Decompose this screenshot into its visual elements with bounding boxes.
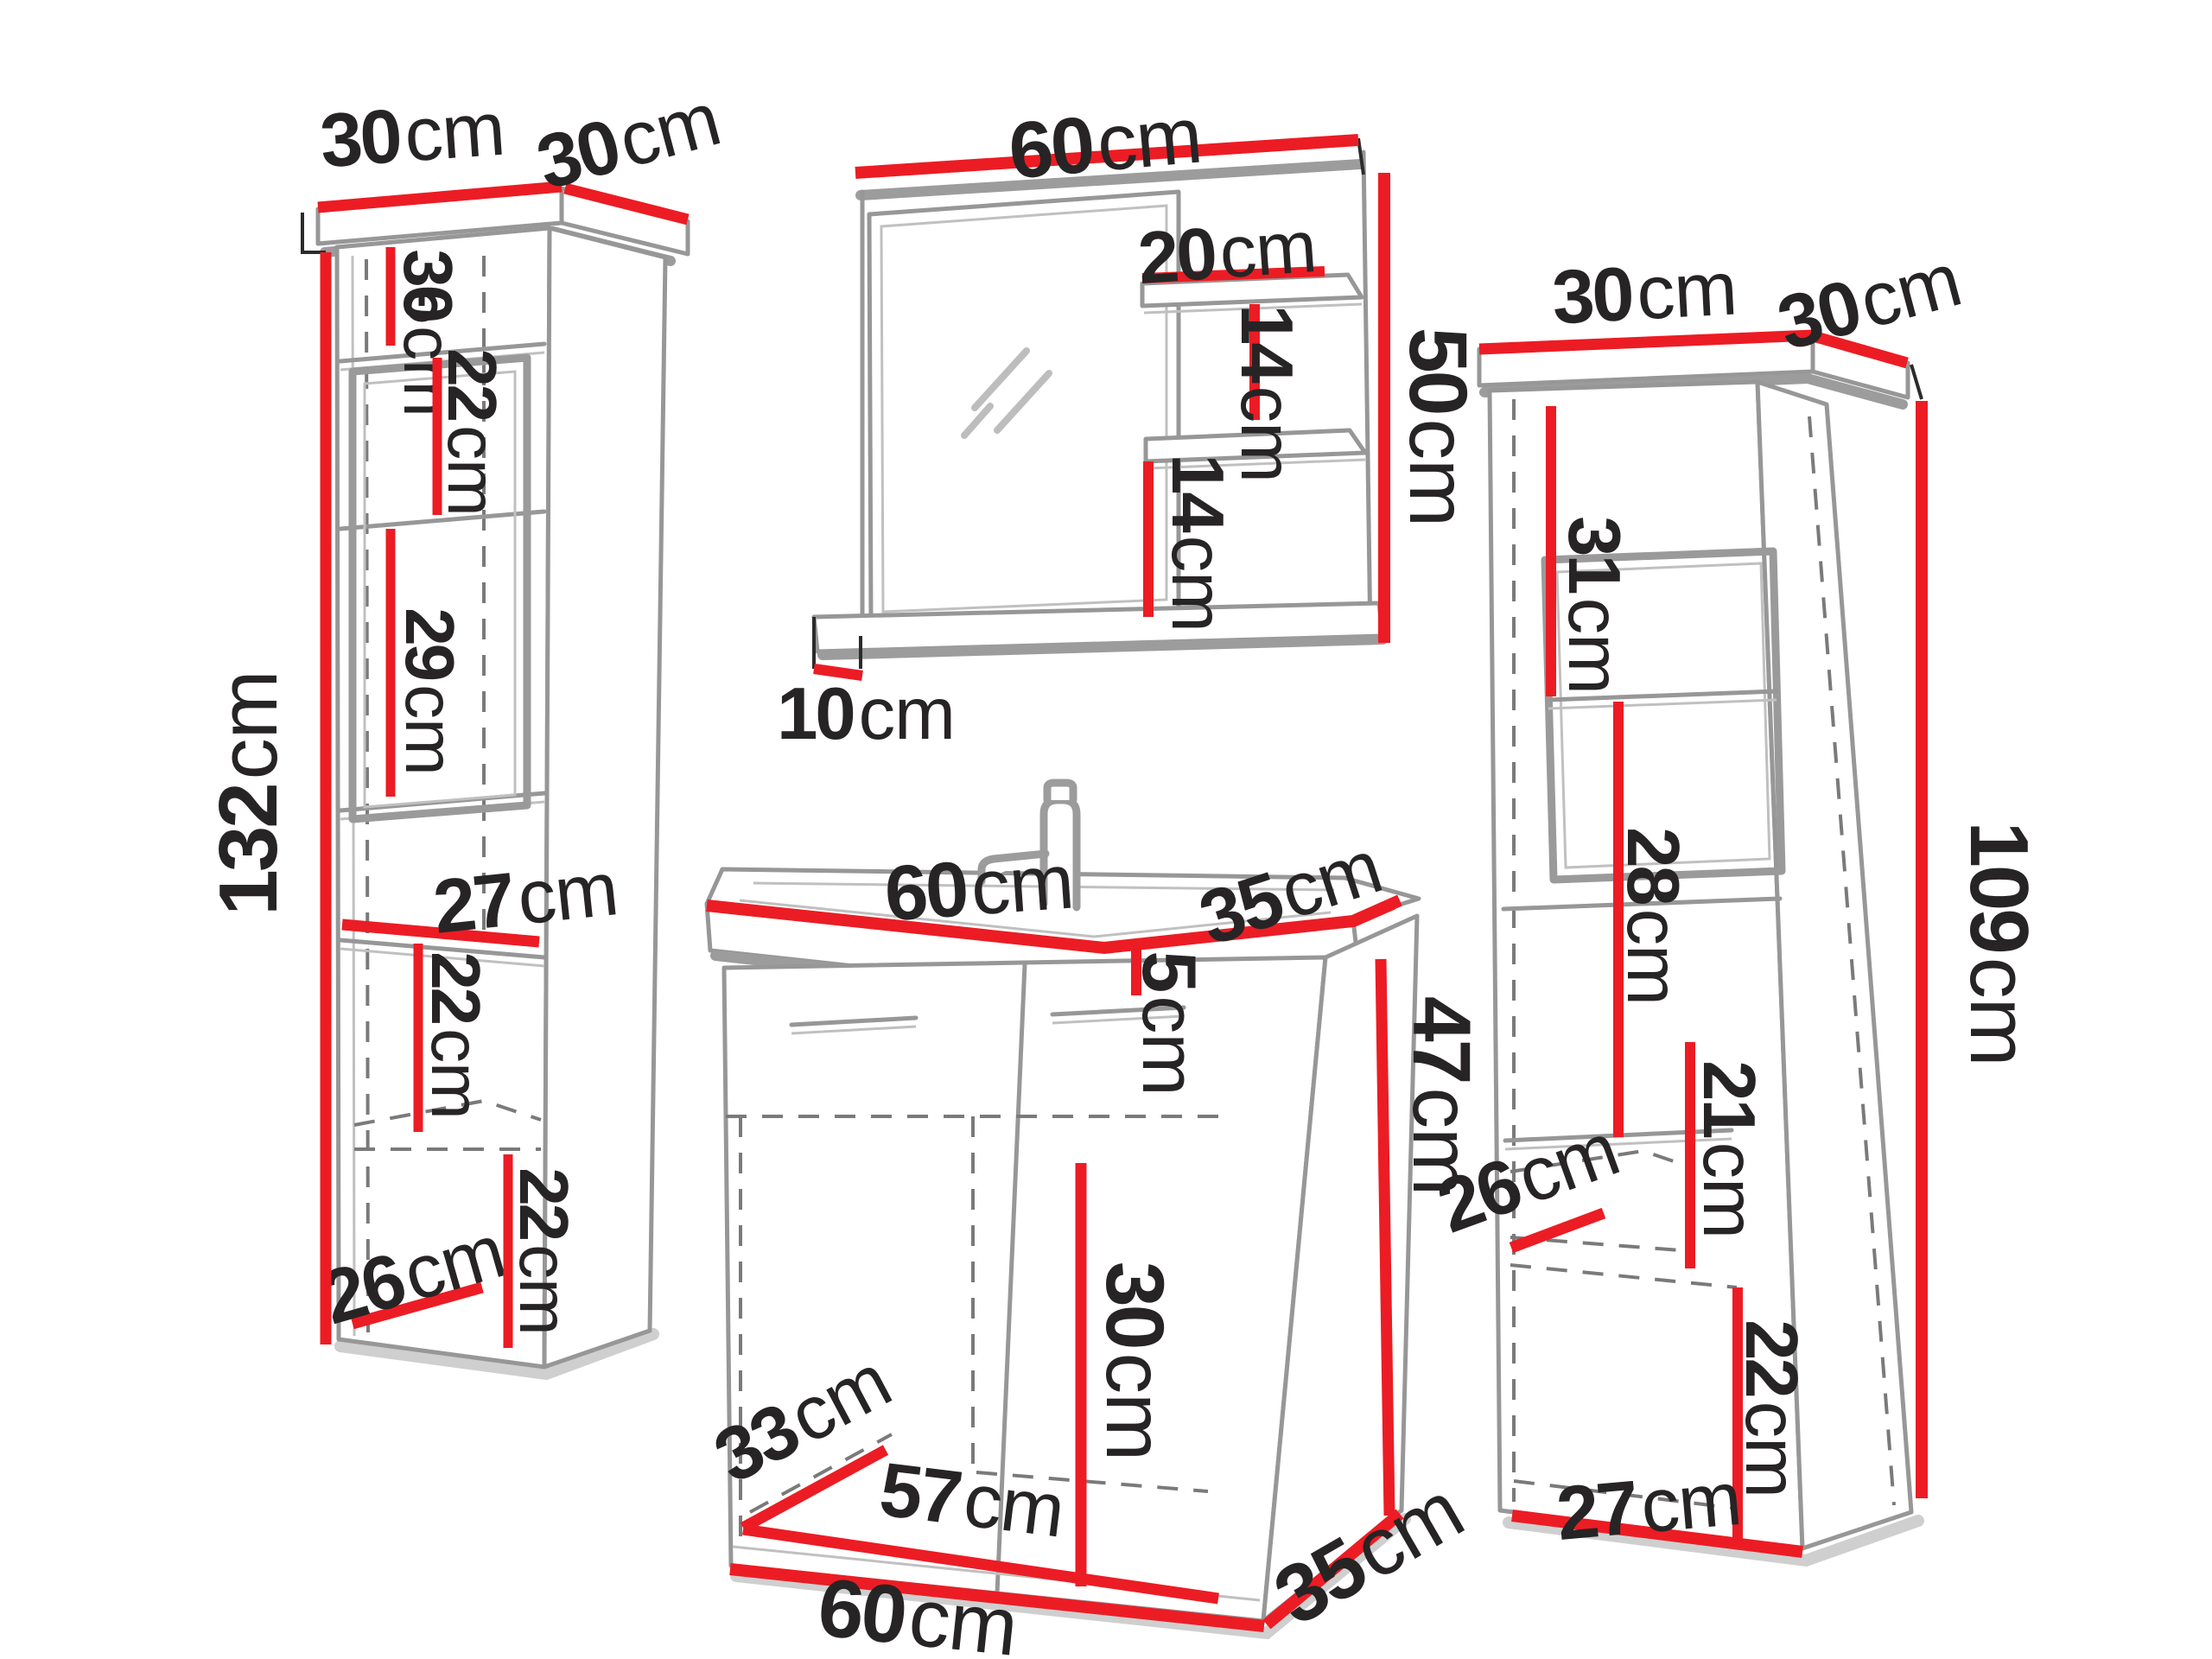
- dim-label-vanity-sink-cabinet-2-5cm: 5cm: [1128, 950, 1213, 1095]
- dim-label-left-tall-cabinet-0-30cm: 30cm: [317, 85, 507, 183]
- diagram-stage: 30cm30cm30cm22cm29cm27cm22cm26cm22cm132c…: [0, 0, 2212, 1659]
- dim-label-right-tall-cabinet-7-27cm: 27cm: [1553, 1454, 1744, 1555]
- mirror-glass: [869, 192, 1179, 624]
- dim-label-right-tall-cabinet-4-21cm: 21cm: [1688, 1060, 1770, 1238]
- dim-label-left-tall-cabinet-8-22cm: 22cm: [506, 1167, 583, 1335]
- dim-label-right-tall-cabinet-6-22cm: 22cm: [1731, 1319, 1813, 1497]
- furniture-dimension-diagram: 30cm30cm30cm22cm29cm27cm22cm26cm22cm132c…: [0, 0, 2212, 1659]
- dim-label-mirror-shelf-unit-4-14cm: 14cm: [1157, 454, 1239, 632]
- dim-label-mirror-shelf-unit-1-50cm: 50cm: [1392, 327, 1484, 526]
- dim-label-mirror-shelf-unit-0-60cm: 60cm: [1005, 91, 1205, 195]
- dim-label-mirror-shelf-unit-5-10cm: 10cm: [777, 673, 955, 755]
- dim-label-left-tall-cabinet-6-22cm: 22cm: [418, 951, 495, 1119]
- dim-label-vanity-sink-cabinet-4-30cm: 30cm: [1089, 1262, 1180, 1460]
- dim-label-right-tall-cabinet-0-30cm: 30cm: [1550, 245, 1738, 340]
- dim-label-left-tall-cabinet-3-22cm: 22cm: [435, 348, 512, 516]
- dim-label-mirror-shelf-unit-2-20cm: 20cm: [1135, 205, 1319, 299]
- dim-label-left-tall-cabinet-4-29cm: 29cm: [392, 607, 469, 775]
- dim-label-vanity-sink-cabinet-0-60cm: 60cm: [882, 839, 1077, 938]
- dim-label-left-tall-cabinet-9-132cm: 132cm: [202, 671, 295, 915]
- dim-label-right-tall-cabinet-8-109cm: 109cm: [1954, 821, 2046, 1065]
- dim-label-right-tall-cabinet-3-28cm: 28cm: [1612, 827, 1694, 1005]
- dim-label-right-tall-cabinet-2-31cm: 31cm: [1554, 516, 1636, 694]
